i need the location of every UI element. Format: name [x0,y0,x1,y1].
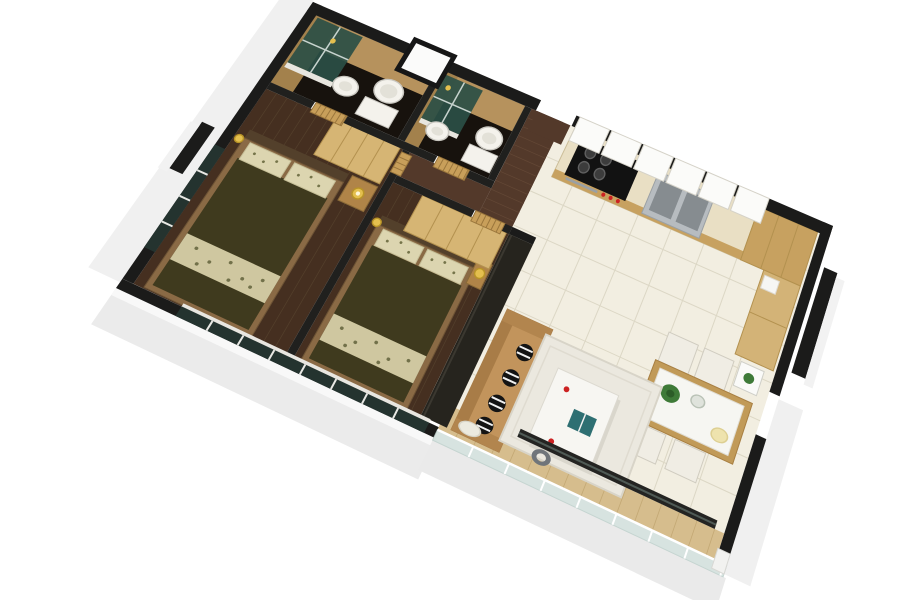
apartment-3d-floorplan [0,0,900,600]
floorplan-svg [0,0,900,600]
